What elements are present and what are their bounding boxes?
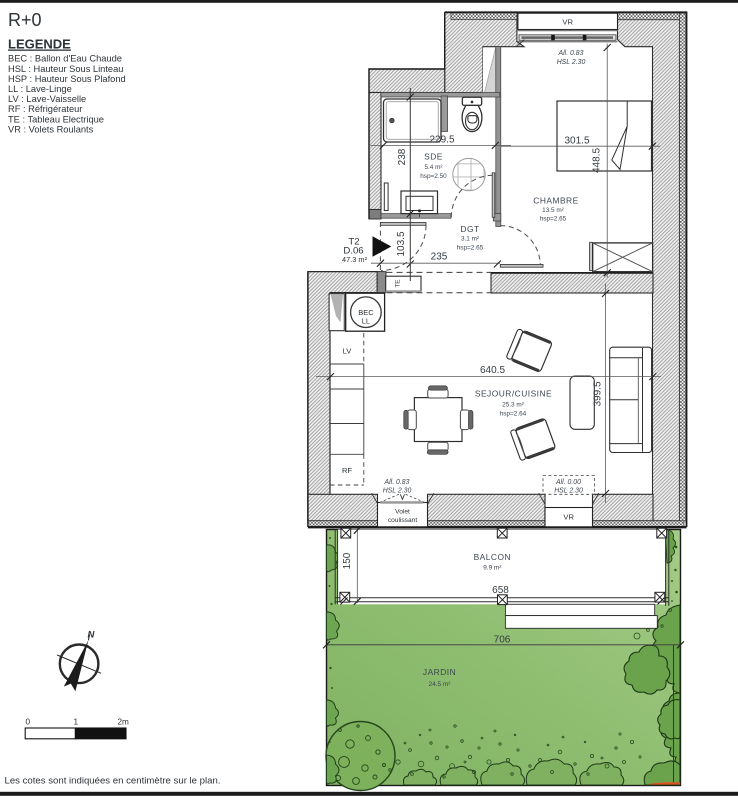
svg-text:1: 1 <box>74 718 79 727</box>
svg-text:25.3 m²: 25.3 m² <box>502 402 524 409</box>
svg-text:All. 0.83: All. 0.83 <box>384 479 410 486</box>
svg-text:HSL 2.30: HSL 2.30 <box>554 488 583 495</box>
svg-text:103.5: 103.5 <box>396 231 407 256</box>
svg-text:0: 0 <box>26 718 31 727</box>
svg-text:399.5: 399.5 <box>593 381 604 406</box>
svg-text:HSL 2.30: HSL 2.30 <box>557 59 586 66</box>
svg-text:235: 235 <box>431 252 448 263</box>
svg-text:HSL 2.30: HSL 2.30 <box>383 488 412 495</box>
svg-text:706: 706 <box>494 634 511 645</box>
svg-text:hsp=2.64: hsp=2.64 <box>500 410 527 417</box>
svg-text:coulissant: coulissant <box>388 517 417 524</box>
svg-text:All. 0.00: All. 0.00 <box>555 479 581 486</box>
svg-text:BEC : Ballon d'Eau Chaude: BEC : Ballon d'Eau Chaude <box>8 54 122 64</box>
svg-text:VR : Volets Roulants: VR : Volets Roulants <box>8 124 94 134</box>
svg-text:47.3 m²: 47.3 m² <box>342 255 368 264</box>
svg-text:448.5: 448.5 <box>591 148 602 173</box>
svg-text:LEGENDE: LEGENDE <box>8 37 71 52</box>
svg-text:LL : Lave-Linge: LL : Lave-Linge <box>8 84 72 94</box>
svg-text:BEC: BEC <box>358 308 374 317</box>
svg-text:13.5 m²: 13.5 m² <box>542 207 564 214</box>
svg-text:JARDIN: JARDIN <box>423 667 456 677</box>
svg-text:24.5 m²: 24.5 m² <box>429 681 451 688</box>
svg-text:3.1 m²: 3.1 m² <box>461 236 479 243</box>
svg-text:238: 238 <box>397 148 408 165</box>
svg-text:658: 658 <box>492 585 509 596</box>
svg-text:9.9 m²: 9.9 m² <box>483 565 501 572</box>
svg-text:5.4 m²: 5.4 m² <box>424 164 442 171</box>
svg-text:hsp=2.50: hsp=2.50 <box>420 173 447 180</box>
svg-text:HSP : Hauteur Sous Plafond: HSP : Hauteur Sous Plafond <box>8 74 126 84</box>
svg-text:301.5: 301.5 <box>564 135 589 146</box>
svg-text:TE: TE <box>395 280 402 288</box>
svg-text:DGT: DGT <box>460 224 479 234</box>
svg-text:VR: VR <box>563 513 574 522</box>
svg-text:SEJOUR/CUISINE: SEJOUR/CUISINE <box>475 389 552 399</box>
svg-text:RF: RF <box>342 466 352 475</box>
svg-text:Les cotes sont indiquées en ce: Les cotes sont indiquées en centimètre s… <box>5 776 221 787</box>
svg-text:hsp=2.65: hsp=2.65 <box>457 244 484 251</box>
svg-text:150: 150 <box>342 552 353 569</box>
svg-text:BALCON: BALCON <box>474 552 511 562</box>
svg-text:R+0: R+0 <box>8 10 42 30</box>
svg-text:LV : Lave-Vaisselle: LV : Lave-Vaisselle <box>8 94 86 104</box>
svg-text:N: N <box>88 630 96 641</box>
svg-text:2m: 2m <box>118 718 130 727</box>
svg-text:CHAMBRE: CHAMBRE <box>533 196 578 206</box>
svg-text:SDE: SDE <box>424 152 443 162</box>
svg-text:Volet: Volet <box>395 509 410 516</box>
svg-text:LV: LV <box>343 347 353 356</box>
svg-text:All. 0.83: All. 0.83 <box>558 50 584 57</box>
svg-text:RF : Réfrigérateur: RF : Réfrigérateur <box>8 104 82 114</box>
svg-text:HSL : Hauteur Sous Linteau: HSL : Hauteur Sous Linteau <box>8 64 123 74</box>
svg-text:640.5: 640.5 <box>480 365 505 376</box>
svg-text:TE : Tableau Electrique: TE : Tableau Electrique <box>8 114 104 124</box>
svg-text:LL: LL <box>362 317 370 326</box>
svg-text:229.5: 229.5 <box>429 135 454 146</box>
svg-text:VR: VR <box>562 18 573 27</box>
svg-text:hsp=2.65: hsp=2.65 <box>540 216 567 223</box>
